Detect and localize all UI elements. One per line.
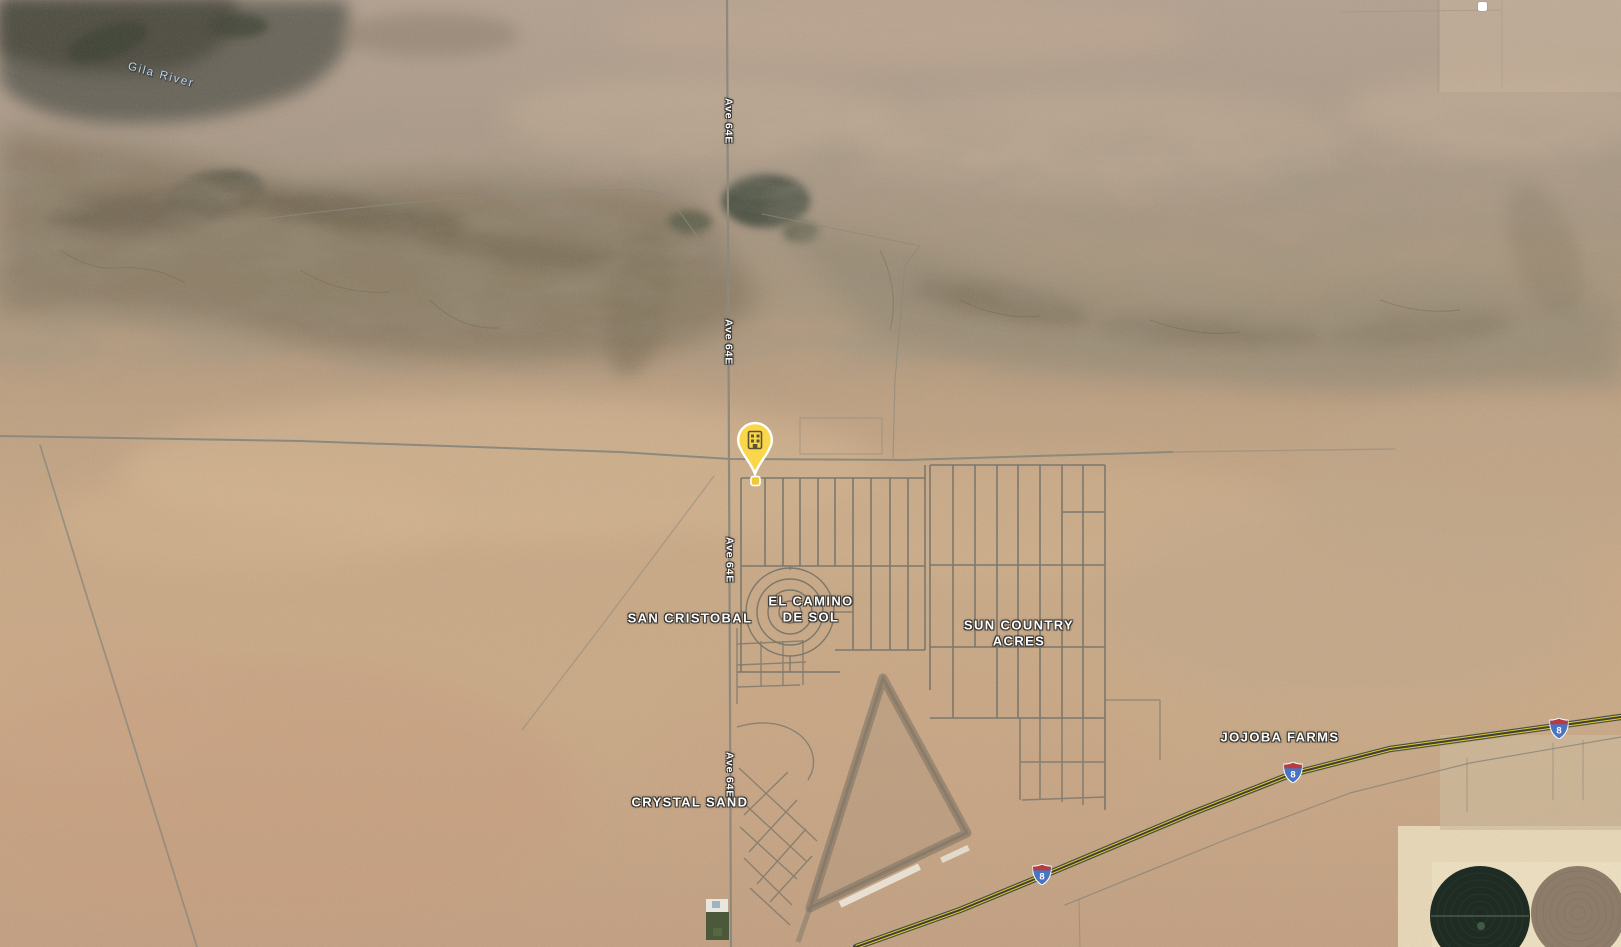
place-label-el-camino-de-sol[interactable]: EL CAMINO DE SOL (768, 594, 853, 625)
grain-overlay-light (0, 0, 1621, 947)
place-label-san-cristobal[interactable]: SAN CRISTOBAL (628, 610, 753, 626)
satellite-imagery (0, 0, 1621, 947)
poi-marker-dot (1478, 2, 1487, 11)
svg-text:8: 8 (1290, 770, 1295, 781)
interstate-8-shield: 8 (1033, 864, 1052, 890)
interstate-8-shield: 8 (1550, 718, 1569, 744)
road-label-ave-64e: Ave 64E (723, 319, 734, 365)
road-label-ave-64e: Ave 64E (723, 98, 734, 144)
place-label-sun-country-acres[interactable]: SUN COUNTRY ACRES (964, 618, 1074, 649)
road-label-ave-64e: Ave 64E (724, 537, 735, 583)
svg-text:8: 8 (1039, 872, 1044, 883)
satellite-map-canvas[interactable]: 8 8 8 Gila River Ave 64E Ave 64E Ave 64E… (0, 0, 1621, 947)
homestead-structures (706, 899, 729, 940)
place-label-crystal-sand[interactable]: CRYSTAL SAND (632, 794, 749, 810)
place-label-jojoba-farms[interactable]: JOJOBA FARMS (1221, 729, 1340, 745)
interstate-8-shield: 8 (1284, 762, 1303, 788)
marker-ground-dot (751, 477, 760, 486)
svg-text:8: 8 (1556, 726, 1561, 737)
road-label-ave-64e: Ave 64E (724, 752, 735, 798)
